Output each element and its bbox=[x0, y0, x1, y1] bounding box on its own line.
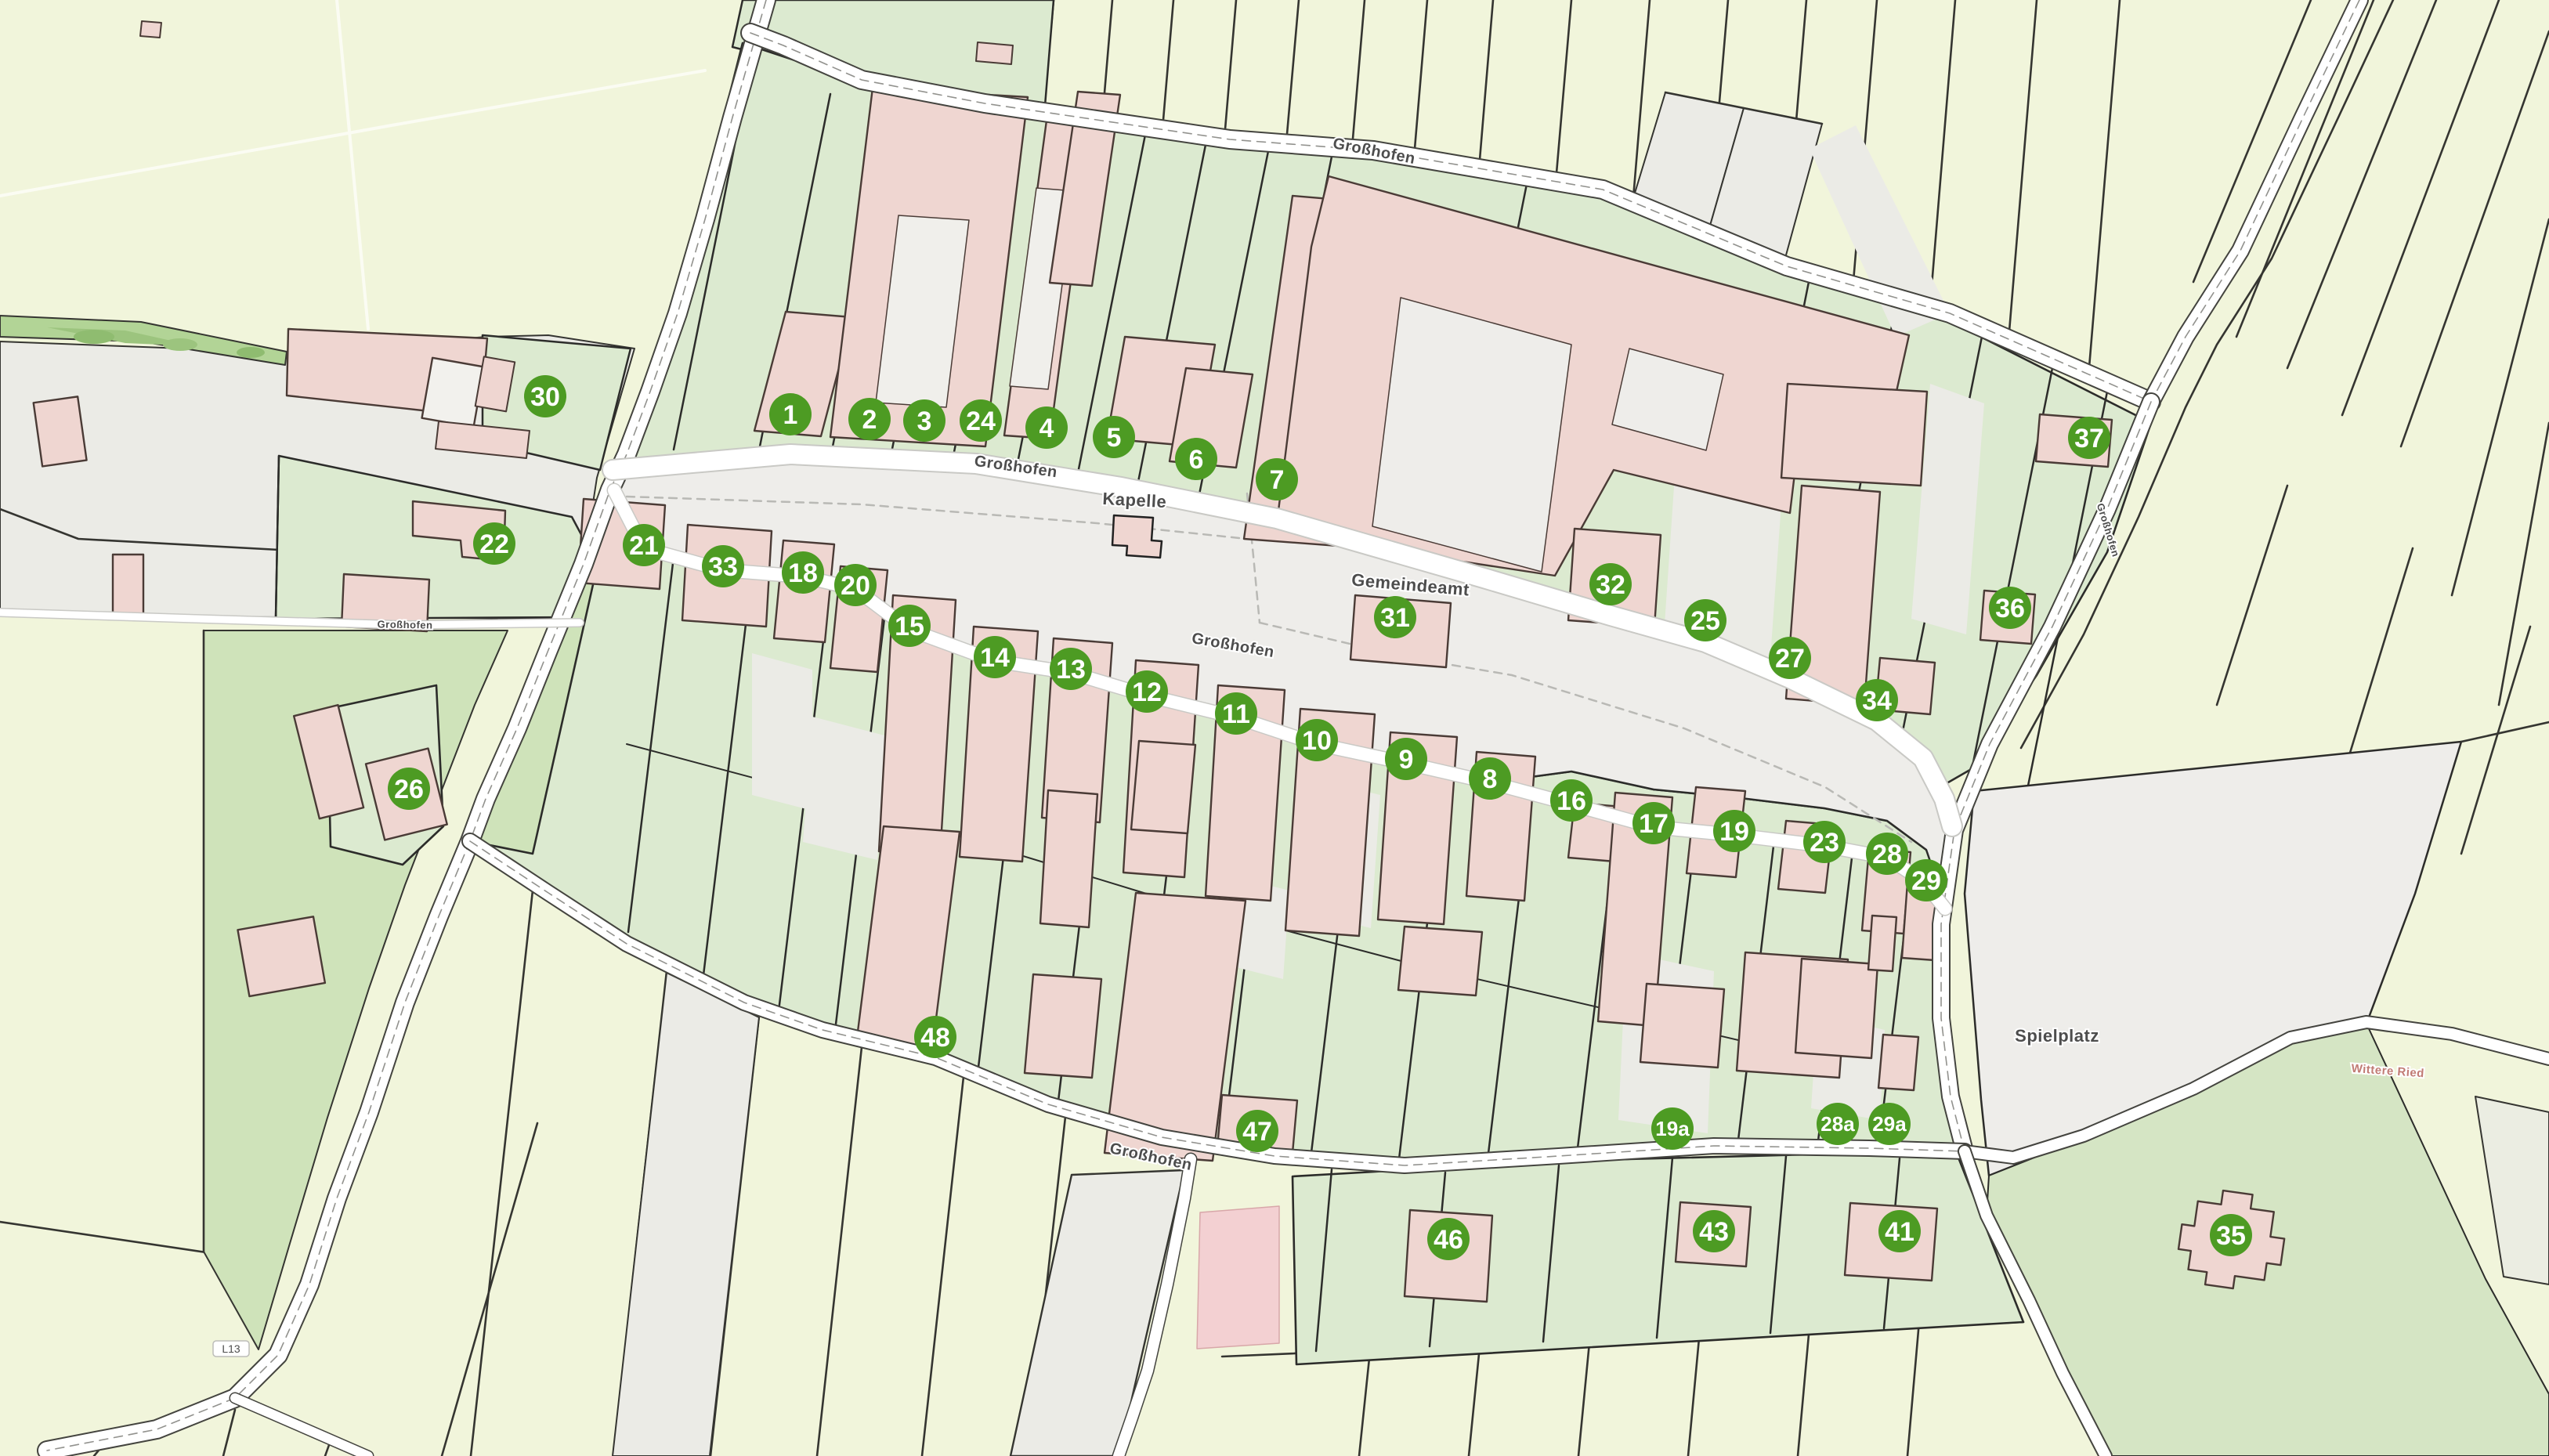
svg-text:6: 6 bbox=[1189, 445, 1204, 475]
svg-text:22: 22 bbox=[479, 529, 509, 559]
svg-text:33: 33 bbox=[708, 552, 738, 582]
svg-text:10: 10 bbox=[1302, 726, 1332, 756]
svg-text:15: 15 bbox=[895, 612, 924, 641]
svg-text:17: 17 bbox=[1639, 809, 1669, 839]
svg-text:7: 7 bbox=[1270, 465, 1285, 495]
svg-text:Kapelle: Kapelle bbox=[1102, 489, 1167, 511]
svg-text:Spielplatz: Spielplatz bbox=[2015, 1026, 2099, 1046]
svg-text:12: 12 bbox=[1132, 677, 1162, 707]
svg-text:41: 41 bbox=[1885, 1217, 1914, 1247]
svg-text:28: 28 bbox=[1872, 840, 1902, 869]
svg-text:13: 13 bbox=[1056, 655, 1086, 685]
svg-text:3: 3 bbox=[917, 406, 932, 436]
svg-text:21: 21 bbox=[629, 531, 659, 561]
svg-text:Großhofen: Großhofen bbox=[377, 618, 432, 630]
svg-text:8: 8 bbox=[1483, 764, 1498, 794]
svg-text:9: 9 bbox=[1399, 745, 1414, 775]
svg-text:24: 24 bbox=[966, 406, 996, 436]
svg-text:14: 14 bbox=[980, 643, 1010, 673]
svg-text:26: 26 bbox=[394, 775, 424, 804]
svg-text:37: 37 bbox=[2074, 424, 2104, 453]
svg-text:4: 4 bbox=[1039, 414, 1054, 443]
svg-text:16: 16 bbox=[1557, 786, 1586, 816]
svg-text:46: 46 bbox=[1434, 1225, 1463, 1255]
svg-text:20: 20 bbox=[841, 571, 870, 601]
svg-text:1: 1 bbox=[783, 400, 798, 430]
svg-text:29a: 29a bbox=[1872, 1112, 1907, 1136]
svg-text:27: 27 bbox=[1775, 644, 1805, 674]
svg-text:48: 48 bbox=[920, 1023, 950, 1053]
svg-text:32: 32 bbox=[1596, 570, 1625, 600]
svg-text:31: 31 bbox=[1380, 603, 1410, 633]
svg-text:11: 11 bbox=[1222, 699, 1250, 729]
svg-text:2: 2 bbox=[862, 405, 877, 435]
svg-text:35: 35 bbox=[2216, 1221, 2246, 1251]
svg-text:28a: 28a bbox=[1820, 1112, 1855, 1136]
svg-text:19a: 19a bbox=[1655, 1117, 1690, 1140]
svg-text:34: 34 bbox=[1862, 686, 1892, 716]
svg-text:29: 29 bbox=[1911, 866, 1941, 896]
svg-text:36: 36 bbox=[1995, 594, 2025, 623]
svg-text:25: 25 bbox=[1690, 606, 1720, 636]
svg-text:18: 18 bbox=[788, 558, 818, 588]
svg-text:5: 5 bbox=[1107, 423, 1122, 453]
svg-text:30: 30 bbox=[530, 382, 560, 412]
svg-text:47: 47 bbox=[1242, 1117, 1272, 1147]
svg-text:L13: L13 bbox=[222, 1342, 240, 1355]
svg-text:23: 23 bbox=[1810, 828, 1839, 858]
svg-text:43: 43 bbox=[1699, 1217, 1729, 1247]
svg-text:19: 19 bbox=[1719, 817, 1749, 847]
